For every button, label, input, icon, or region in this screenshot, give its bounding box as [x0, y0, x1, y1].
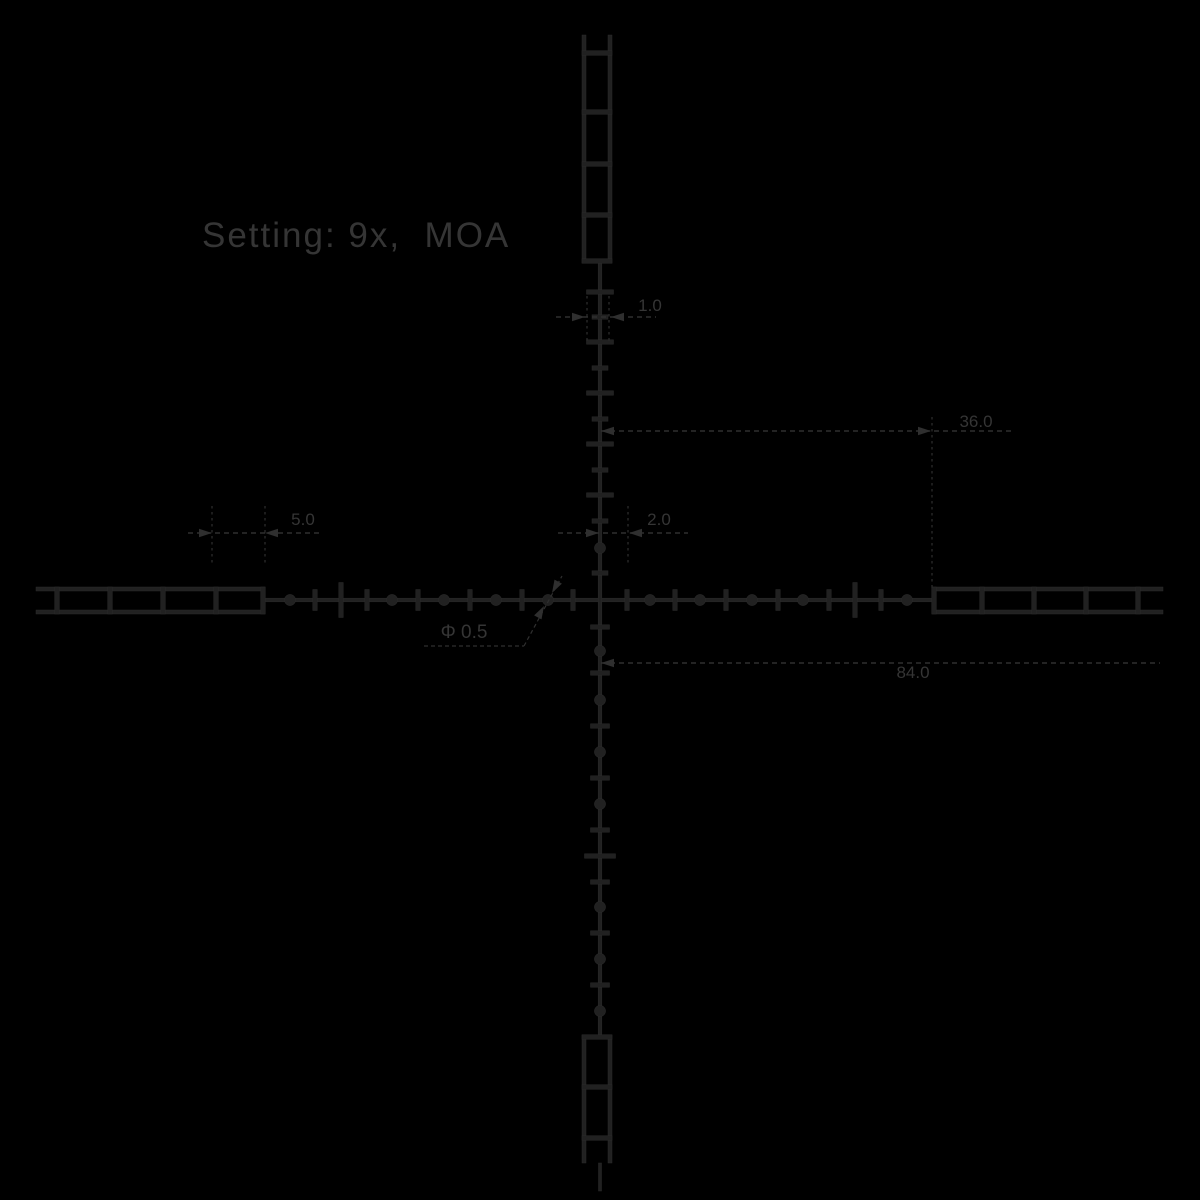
horizontal-tick [520, 590, 524, 611]
top-ladder-rung [582, 110, 612, 115]
right-ladder-rung [1084, 587, 1089, 614]
vertical-tick [591, 880, 610, 884]
dimension-arrowhead [611, 313, 624, 321]
right-ladder-rung [1032, 587, 1037, 614]
dim-label-2-0: 2.0 [647, 510, 671, 529]
right-ladder-rung [1136, 587, 1141, 614]
dim-label-1-0: 1.0 [638, 296, 662, 315]
dimension-arrowhead [601, 427, 614, 435]
horizontal-tick [625, 590, 629, 611]
horizontal-tick [776, 590, 780, 611]
left-ladder-rail [36, 587, 265, 591]
dimension-arrowhead [265, 529, 278, 537]
right-ladder-rung [932, 587, 937, 614]
reticle-dot [746, 594, 757, 605]
left-ladder-rung [108, 587, 113, 614]
vertical-narrow-tick [592, 571, 608, 575]
vertical-tick [591, 625, 610, 629]
dimension-arrowhead [601, 659, 614, 667]
vertical-narrow-tick [592, 519, 608, 523]
right-ladder-rail [932, 587, 1163, 591]
reticle-diagram: 1.0 2.0 5.0 36.0 84.0 Φ 0.5 Setting: 9x,… [0, 0, 1200, 1200]
right-ladder-rail [932, 610, 1163, 614]
left-ladder-rung [161, 587, 166, 614]
reticle-dot [694, 594, 705, 605]
top-ladder-rung [582, 213, 612, 218]
left-ladder-rung [55, 587, 60, 614]
dimension-arrowhead [572, 313, 585, 321]
bottom-ladder-rail [608, 1035, 612, 1163]
bottom-stub-line [599, 1163, 602, 1191]
dimension-labels: 1.0 2.0 5.0 36.0 84.0 Φ 0.5 [291, 296, 992, 682]
dim-label-84-0: 84.0 [896, 663, 929, 682]
vertical-narrow-tick [592, 417, 608, 421]
bottom-ladder-rung [582, 1035, 612, 1040]
horizontal-tick [313, 590, 317, 611]
left-ladder-rung [214, 587, 219, 614]
reticle-dot [797, 594, 808, 605]
reticle-dot [594, 645, 605, 656]
bottom-ladder-rail [582, 1035, 586, 1163]
dim-label-phi-0-5: Φ 0.5 [441, 622, 488, 643]
horizontal-tick [416, 590, 420, 611]
reticle-dot [386, 594, 397, 605]
vertical-tick [591, 983, 610, 987]
left-ladder-rung [261, 587, 266, 614]
reticle-dot [284, 594, 295, 605]
reticle-dot [594, 542, 605, 553]
dimension-arrowhead [918, 427, 931, 435]
reticle-dot [594, 746, 605, 757]
left-ladder-rail [36, 610, 265, 614]
vertical-narrow-tick [592, 366, 608, 370]
reticle-dot [542, 594, 553, 605]
dimension-arrowhead [199, 529, 212, 537]
dimension-arrowhead [629, 529, 642, 537]
dim-label-5-0: 5.0 [291, 510, 315, 529]
vertical-wide-tick [585, 854, 616, 858]
setting-label: Setting: 9x, MOA [202, 216, 510, 256]
horizontal-tick [879, 590, 883, 611]
top-ladder-rung [582, 259, 612, 264]
reticle-geometry [36, 35, 1163, 1191]
horizontal-tick [365, 590, 369, 611]
vertical-wide-tick [587, 442, 614, 446]
reticle-dot [594, 798, 605, 809]
right-ladder-rung [980, 587, 985, 614]
reticle-dot [438, 594, 449, 605]
vertical-tick [591, 776, 610, 780]
horizontal-tall-tick [853, 583, 857, 618]
reticle-dot [594, 1005, 605, 1016]
top-ladder-rung [582, 162, 612, 167]
dimension-arrowhead [548, 580, 562, 595]
bottom-ladder-rung [582, 1136, 612, 1141]
reticle-dot [594, 953, 605, 964]
horizontal-tick [673, 590, 677, 611]
bottom-ladder-rung [582, 1085, 612, 1090]
dimension-arrowhead [586, 529, 599, 537]
vertical-tick [591, 931, 610, 935]
reticle-dot [594, 901, 605, 912]
vertical-wide-tick [587, 493, 614, 497]
vertical-wide-tick [587, 391, 614, 395]
vertical-tick [591, 671, 610, 675]
horizontal-tick [827, 590, 831, 611]
reticle-drawing: 1.0 2.0 5.0 36.0 84.0 Φ 0.5 [0, 0, 1200, 1200]
horizontal-tick [724, 590, 728, 611]
top-ladder-rung [582, 51, 612, 56]
reticle-dot [644, 594, 655, 605]
top-ladder-rail [582, 35, 586, 263]
vertical-tick [591, 724, 610, 728]
horizontal-tick [571, 590, 575, 611]
horizontal-tick [468, 590, 472, 611]
reticle-dot [490, 594, 501, 605]
vertical-wide-tick [587, 290, 614, 294]
horizontal-tall-tick [339, 583, 343, 618]
top-ladder-rail [608, 35, 612, 263]
reticle-dot [594, 694, 605, 705]
dim-label-36-0: 36.0 [959, 412, 992, 431]
vertical-tick [591, 828, 610, 832]
vertical-narrow-tick [592, 468, 608, 472]
reticle-dot [901, 594, 912, 605]
